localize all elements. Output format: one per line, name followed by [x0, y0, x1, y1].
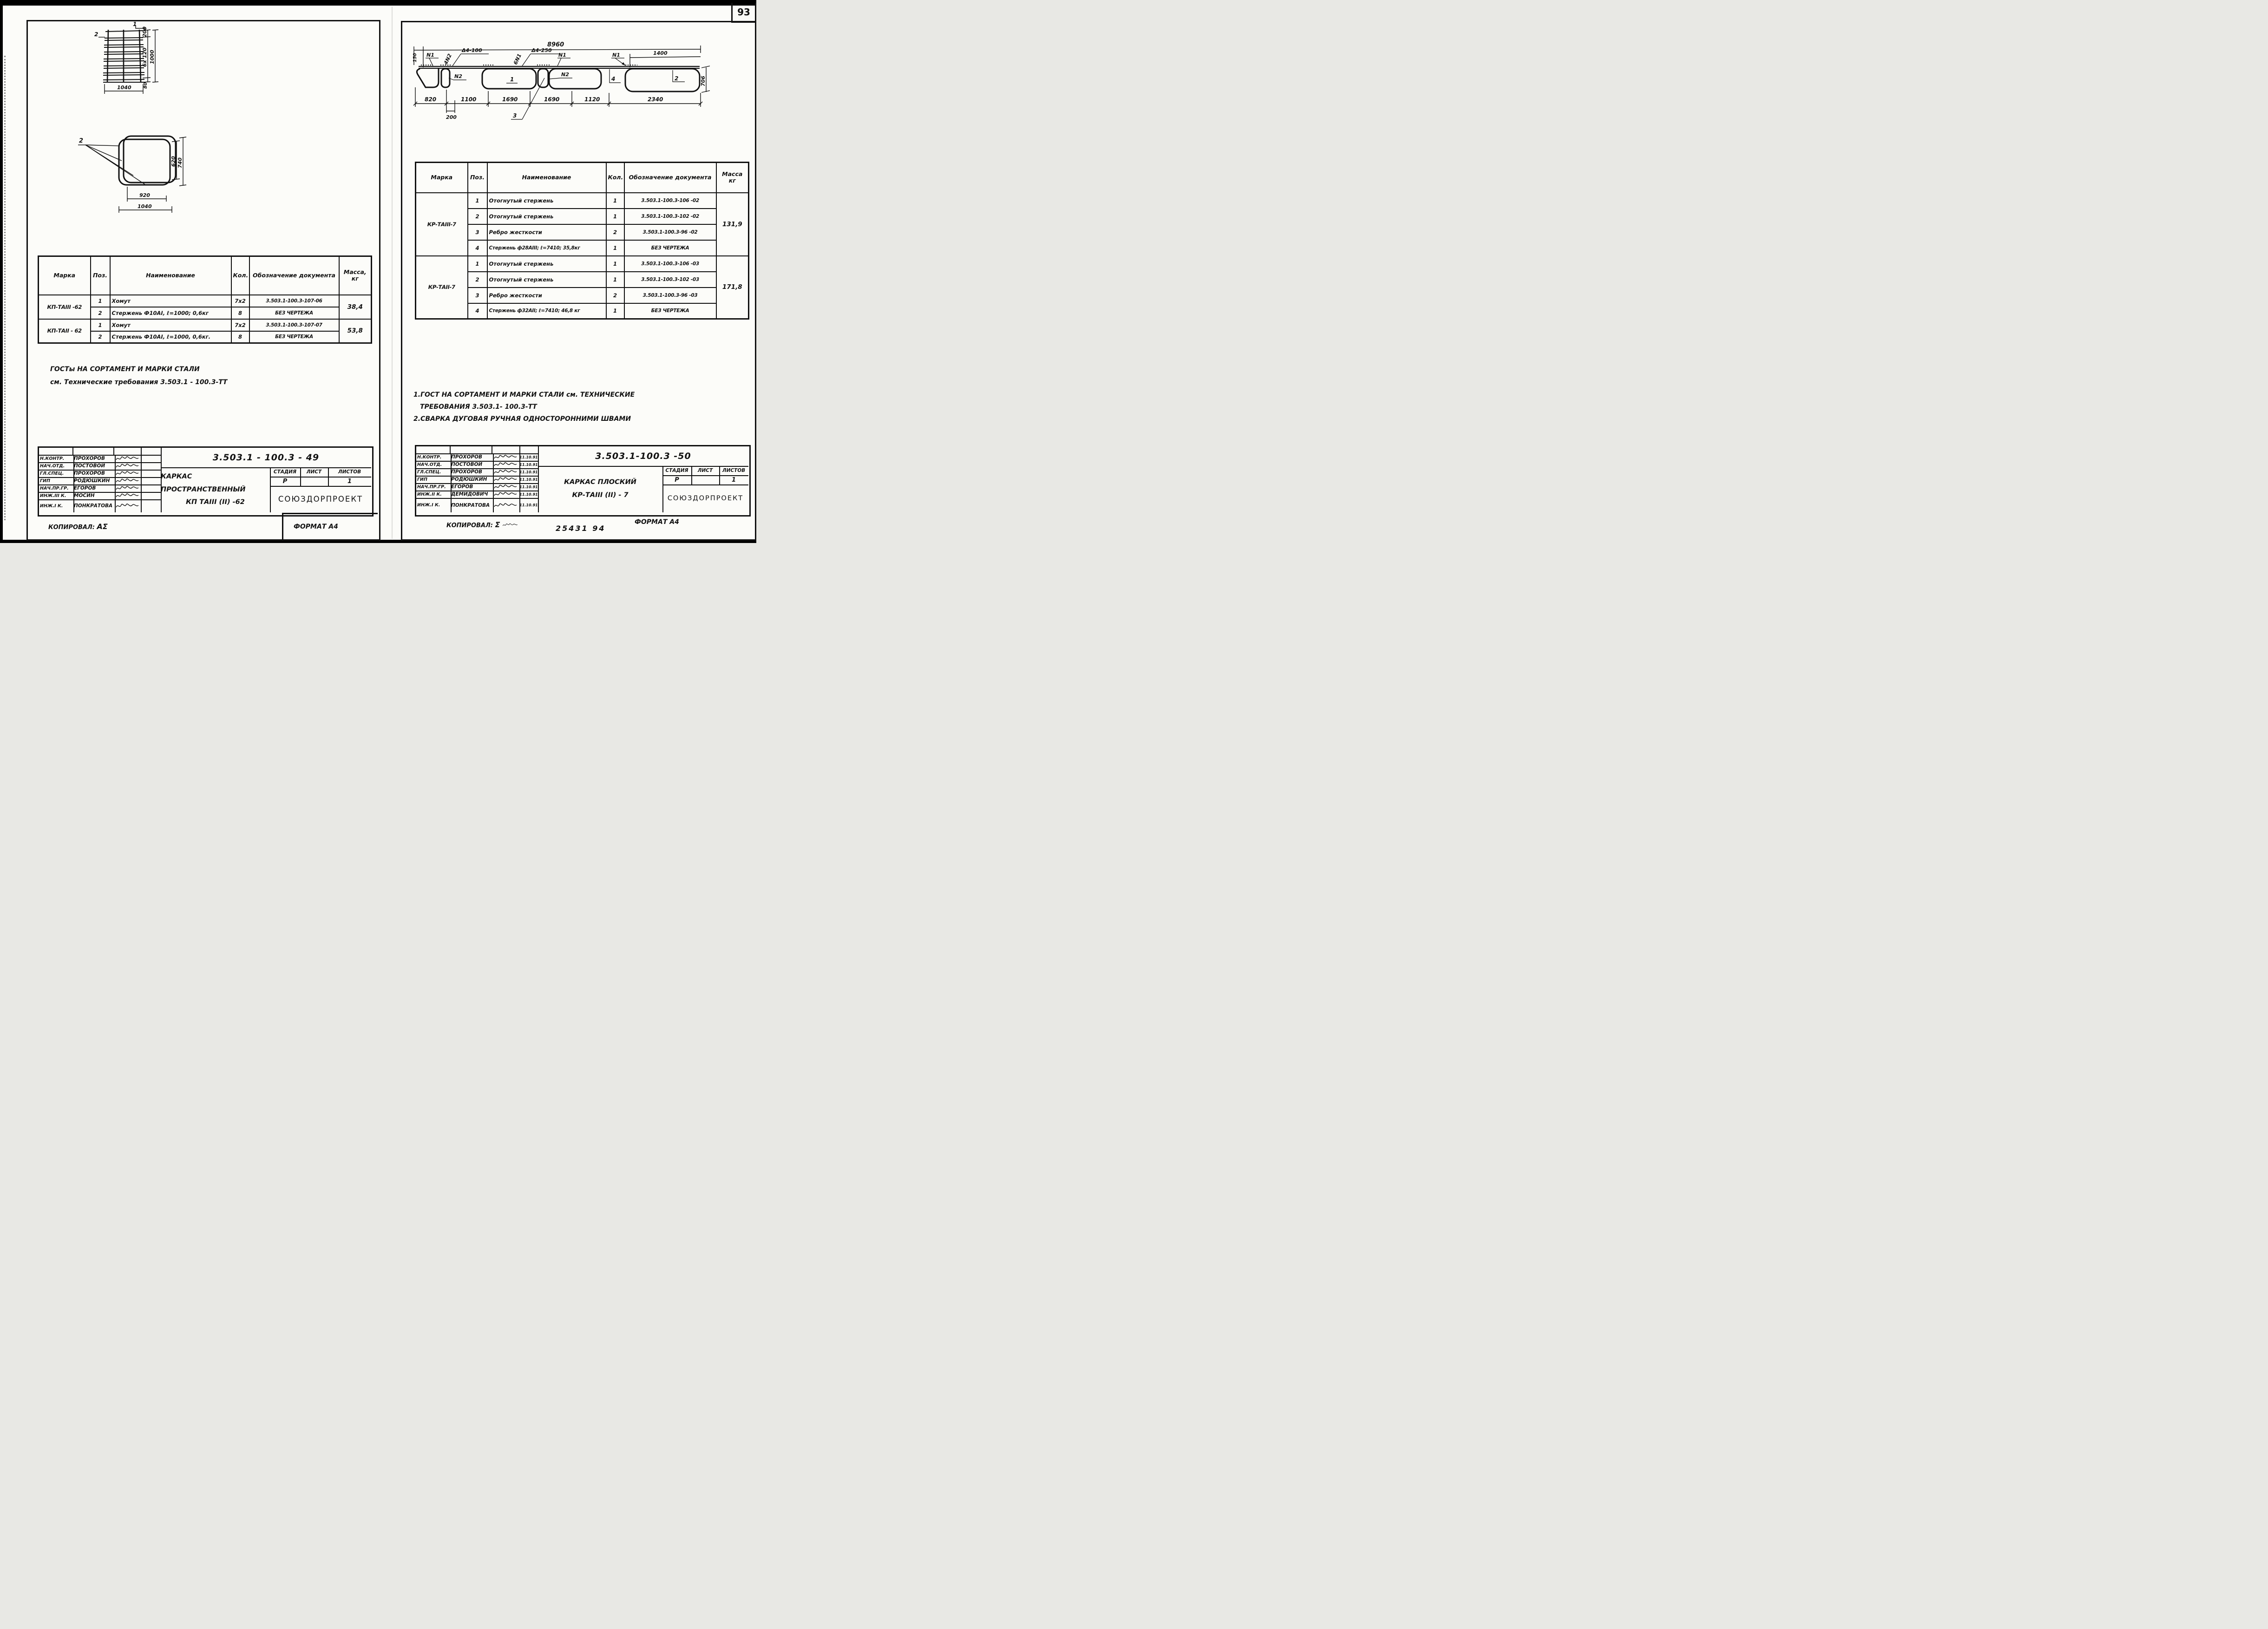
doc-number-cell: 3.503.1-100.3 -50: [538, 446, 748, 467]
col-header-name: Наименование: [487, 163, 606, 193]
pos-cell: 1: [468, 256, 487, 272]
label-n1a: N1: [426, 52, 434, 58]
marka-cell: КП-ТАII - 62: [39, 319, 91, 343]
dim-1000: 1000: [149, 50, 155, 64]
signature: [115, 470, 139, 477]
pos-cell: 3: [468, 288, 487, 303]
table-row: КП-ТАII - 62 1 Хомут 7x2 3.503.1-100.3-1…: [39, 319, 372, 331]
doc-cell: 3.503.1-100.3-96 -03: [624, 288, 716, 303]
dim-820: 820: [425, 96, 436, 103]
left-spec-table: Марка Поз. Наименование Кол. Обозначение…: [38, 255, 372, 344]
dim-1100: 1100: [461, 96, 476, 103]
sheets-header: ЛИСТОВ: [328, 467, 371, 478]
pos-cell: 4: [468, 240, 487, 256]
pos-cell: 2: [91, 331, 110, 343]
pos-cell: 3: [468, 224, 487, 240]
doc-cell: 3.503.1-100.3-102 -02: [624, 209, 716, 224]
dim-200: 200: [446, 114, 457, 120]
role-cell: ИНЖ.I К.: [39, 499, 74, 512]
signature: [493, 468, 518, 476]
qty-cell: 7x2: [231, 295, 249, 307]
col-header-pos: Поз.: [91, 256, 110, 295]
sheet-value: [691, 475, 720, 485]
organization-cell: СОЮЗДОРПРОЕКТ: [270, 486, 371, 512]
pos-cell: 2: [468, 209, 487, 224]
left-title-block: Н.КОНТР. ПРОХОРОВ НАЧ.ОТД. ПОСТОВОЙ ГЛ.С…: [38, 446, 374, 517]
name-cell: Стержень Ф10АI, ℓ=1000, 0,6кг.: [110, 331, 231, 343]
doc-cell: 3.503.1-100.3-96 -02: [624, 224, 716, 240]
mass-cell: 171,8: [716, 256, 749, 319]
mass-cell: 38,4: [339, 295, 372, 319]
qty-cell: 8: [231, 331, 249, 343]
signature: [493, 461, 518, 468]
col-header-doc: Обозначение документа: [624, 163, 716, 193]
name-cell: Отогнутый стержень: [487, 272, 606, 288]
empty-cell: [141, 499, 162, 512]
signature: [115, 492, 139, 499]
title-line-1: КАРКАС ПЛОСКИЙ: [564, 476, 636, 489]
archive-stamp: 25431 94: [556, 524, 606, 533]
col-header-name: Наименование: [110, 256, 231, 295]
page-number: 93: [737, 7, 750, 18]
format-label: ФОРМАТ А4: [283, 523, 338, 530]
doc-cell: 3.503.1-100.3-106 -03: [624, 256, 716, 272]
dim-150: 150: [413, 53, 418, 62]
role-cell: ИНЖ.I К.: [416, 498, 452, 512]
col-header-mass: Масса кг: [716, 163, 749, 193]
label-n1c: N1: [612, 52, 620, 58]
left-page: 200 6x 120 80 1000 1040 1 2: [26, 20, 380, 541]
col-header-qty: Кол.: [231, 256, 249, 295]
dim-706: 706: [700, 76, 706, 86]
qty-cell: 7x2: [231, 319, 249, 331]
pos-label-1: 1: [133, 21, 137, 27]
spatial-cage-elevation: 200 6x 120 80 1000 1040 1 2: [94, 21, 158, 94]
qty-cell: 1: [606, 209, 624, 224]
pos-cell: 2: [468, 272, 487, 288]
binding-perforation: [4, 56, 6, 520]
note-line: см. Технические требования 3.503.1 - 100…: [50, 379, 227, 386]
qty-cell: 1: [606, 256, 624, 272]
copied-label: КОПИРОВАЛ:: [48, 524, 95, 531]
dim-80: 80: [143, 82, 148, 89]
copied-by: КОПИРОВАЛ: Σ: [446, 520, 518, 529]
signature: [493, 453, 518, 461]
left-drawings: 200 6x 120 80 1000 1040 1 2: [28, 21, 379, 235]
hoop-plan: 2 620 740 920 1040: [78, 136, 186, 213]
name-cell: Хомут: [110, 319, 231, 331]
signature-cell: [492, 498, 520, 512]
title-line-2: КП ТАIII (II) -62: [186, 496, 245, 509]
format-box: ФОРМАТ А4: [282, 513, 378, 539]
doc-cell: 3.503.1-100.3-107-06: [249, 295, 339, 307]
doc-cell: БЕЗ ЧЕРТЕЖА: [249, 331, 339, 343]
label-n1b: N1: [558, 52, 566, 58]
pos-cell: 1: [91, 295, 110, 307]
flat-cage-drawing: 8960 150 1400 N1 4N2 Δ4-100 6N1 Δ4-250 N…: [402, 22, 755, 143]
doc-cell: 3.503.1-100.3-107-07: [249, 319, 339, 331]
name-cell: Хомут: [110, 295, 231, 307]
pos-cell: 1: [468, 193, 487, 209]
label-d4-100: Δ4-100: [461, 47, 482, 53]
sheet-header: ЛИСТ: [691, 466, 720, 476]
qty-cell: 2: [606, 224, 624, 240]
dim-2340: 2340: [648, 96, 663, 103]
copied-signature: ΑΣ: [97, 522, 108, 531]
qty-cell: 8: [231, 307, 249, 319]
pos-label-2: 2: [94, 31, 98, 38]
marka-cell: КР-ТАIII-7: [416, 193, 468, 256]
col-header-qty: Кол.: [606, 163, 624, 193]
name-cell: Отогнутый стержень: [487, 209, 606, 224]
col-header-marka: Марка: [416, 163, 468, 193]
mass-cell: 53,8: [339, 319, 372, 343]
label-d4-250: Δ4-250: [531, 47, 552, 53]
marka-cell: КП-ТАIII -62: [39, 295, 91, 319]
marka-cell: КР-ТАII-7: [416, 256, 468, 319]
scan-edge-top: [0, 0, 756, 6]
copied-label: КОПИРОВАЛ:: [446, 522, 493, 529]
format-label: ФОРМАТ А4: [635, 518, 679, 526]
note-line: 2.СВАРКА ДУГОВАЯ РУЧНАЯ ОДНОСТОРОННИМИ Ш…: [413, 416, 635, 422]
right-page: 8960 150 1400 N1 4N2 Δ4-100 6N1 Δ4-250 N…: [401, 21, 756, 541]
left-notes: ГОСТы НА СОРТАМЕНТ И МАРКИ СТАЛИ см. Тех…: [50, 366, 227, 386]
dim-1400: 1400: [653, 50, 668, 56]
copied-by: КОПИРОВАЛ: ΑΣ: [48, 522, 108, 531]
signature-cell: [113, 499, 142, 512]
table-row: КР-ТАIII-7 1 Отогнутый стержень 1 3.503.…: [416, 193, 749, 209]
col-header-marka: Марка: [39, 256, 91, 295]
name-cell: Стержень ф28АIII; ℓ=7410; 35,8кг: [487, 240, 606, 256]
organization-cell: СОЮЗДОРПРОЕКТ: [662, 484, 748, 512]
page-number-box: 93: [731, 3, 756, 23]
dim-1040: 1040: [117, 85, 131, 91]
doc-cell: БЕЗ ЧЕРТЕЖА: [624, 303, 716, 319]
doc-cell: 3.503.1-100.3-102 -03: [624, 272, 716, 288]
page-fold-line: [392, 7, 393, 539]
sheets-value: 1: [719, 475, 748, 485]
table-row: КП-ТАIII -62 1 Хомут 7x2 3.503.1-100.3-1…: [39, 295, 372, 307]
name-cell: ПОНКРАТОВА: [72, 499, 116, 512]
title-line-1: КАРКАС ПРОСТРАНСТВЕННЫЙ: [161, 471, 270, 496]
table-row: КР-ТАII-7 1 Отогнутый стержень 1 3.503.1…: [416, 256, 749, 272]
name-cell: Ребро жесткости: [487, 224, 606, 240]
right-notes: 1.ГОСТ НА СОРТАМЕНТ И МАРКИ СТАЛИ см. ТЕ…: [413, 392, 635, 422]
sheets-header: ЛИСТОВ: [719, 466, 748, 476]
doc-cell: БЕЗ ЧЕРТЕЖА: [624, 240, 716, 256]
flat-cage-elevation: 8960 150 1400 N1 4N2 Δ4-100 6N1 Δ4-250 N…: [413, 41, 710, 120]
dim-740: 740: [177, 157, 183, 168]
scan-edge-left: [0, 0, 3, 543]
pos-1: 1: [510, 76, 514, 83]
note-line: 1.ГОСТ НА СОРТАМЕНТ И МАРКИ СТАЛИ см. ТЕ…: [413, 392, 635, 398]
dim-620: 620: [170, 156, 177, 167]
doc-number-cell: 3.503.1 - 100.3 - 49: [161, 448, 371, 468]
signature: [115, 455, 139, 462]
right-spec-table: Марка Поз. Наименование Кол. Обозначение…: [415, 162, 749, 320]
signature: [493, 483, 518, 491]
scanned-drawing-sheet: 93: [0, 0, 756, 543]
qty-cell: 1: [606, 193, 624, 209]
pos-cell: 1: [91, 319, 110, 331]
pos-cell: 4: [468, 303, 487, 319]
label-n2b: N2: [561, 72, 569, 78]
label-n2a: N2: [454, 73, 462, 79]
name-cell: Ребро жесткости: [487, 288, 606, 303]
stage-header: СТАДИЯ: [662, 466, 692, 476]
qty-cell: 1: [606, 303, 624, 319]
col-header-mass: Масса, кг: [339, 256, 372, 295]
signature: [493, 491, 518, 498]
object-title-cell: КАРКАС ПЛОСКИЙ КР-ТАIII (II) - 7: [538, 466, 663, 512]
sheets-value: 1: [328, 477, 371, 487]
right-title-block: Н.КОНТР. ПРОХОРОВ 11.10.91 НАЧ.ОТД. ПОСТ…: [415, 445, 751, 517]
title-line-2: КР-ТАIII (II) - 7: [572, 489, 628, 502]
name-cell: Отогнутый стержень: [487, 193, 606, 209]
qty-cell: 2: [606, 288, 624, 303]
note-line: ТРЕБОВАНИЯ 3.503.1- 100.3-ТТ: [413, 404, 635, 410]
signature: [115, 502, 139, 510]
copied-signature: Σ: [495, 520, 500, 529]
dim-1120: 1120: [584, 96, 600, 103]
stage-header: СТАДИЯ: [270, 467, 301, 478]
name-cell: Стержень Ф10АI, ℓ=1000; 0,6кг: [110, 307, 231, 319]
doc-cell: БЕЗ ЧЕРТЕЖА: [249, 307, 339, 319]
label-6n1: 6N1: [512, 53, 523, 66]
pos-2: 2: [675, 75, 678, 82]
signature: [115, 484, 139, 492]
pos-cell: 2: [91, 307, 110, 319]
dim-1690a: 1690: [502, 96, 518, 103]
signature: [115, 462, 139, 470]
dim-6x120: 6x 120: [142, 47, 148, 67]
qty-cell: 1: [606, 240, 624, 256]
sheet-header: ЛИСТ: [300, 467, 329, 478]
name-cell: Отогнутый стержень: [487, 256, 606, 272]
stage-value: Р: [270, 477, 301, 487]
signature: [493, 476, 518, 483]
object-title-cell: КАРКАС ПРОСТРАНСТВЕННЫЙ КП ТАIII (II) -6…: [161, 467, 271, 512]
name-cell: Стержень ф32АII; ℓ=7410; 46,8 кг: [487, 303, 606, 319]
dim-200: 200: [142, 26, 148, 37]
doc-cell: 3.503.1-100.3-106 -02: [624, 193, 716, 209]
mass-cell: 131,9: [716, 193, 749, 256]
name-cell: ПОНКРАТОВА: [450, 498, 494, 512]
signature: [115, 477, 139, 484]
stage-value: Р: [662, 475, 692, 485]
pos-3: 3: [513, 112, 517, 119]
dim-920: 920: [139, 192, 150, 198]
dim-1690b: 1690: [544, 96, 559, 103]
date-cell: 11.10.91: [519, 498, 539, 512]
sheet-value: [300, 477, 329, 487]
hoop-pos-label-2: 2: [79, 137, 83, 144]
copied-signature-squiggle: [502, 521, 518, 529]
note-line: ГОСТы НА СОРТАМЕНТ И МАРКИ СТАЛИ: [50, 366, 227, 373]
qty-cell: 1: [606, 272, 624, 288]
col-header-doc: Обозначение документа: [249, 256, 339, 295]
pos-4: 4: [611, 76, 615, 82]
col-header-pos: Поз.: [468, 163, 487, 193]
signature: [493, 502, 518, 509]
dim-1040-hoop: 1040: [138, 203, 152, 209]
label-4n2: 4N2: [443, 52, 453, 66]
